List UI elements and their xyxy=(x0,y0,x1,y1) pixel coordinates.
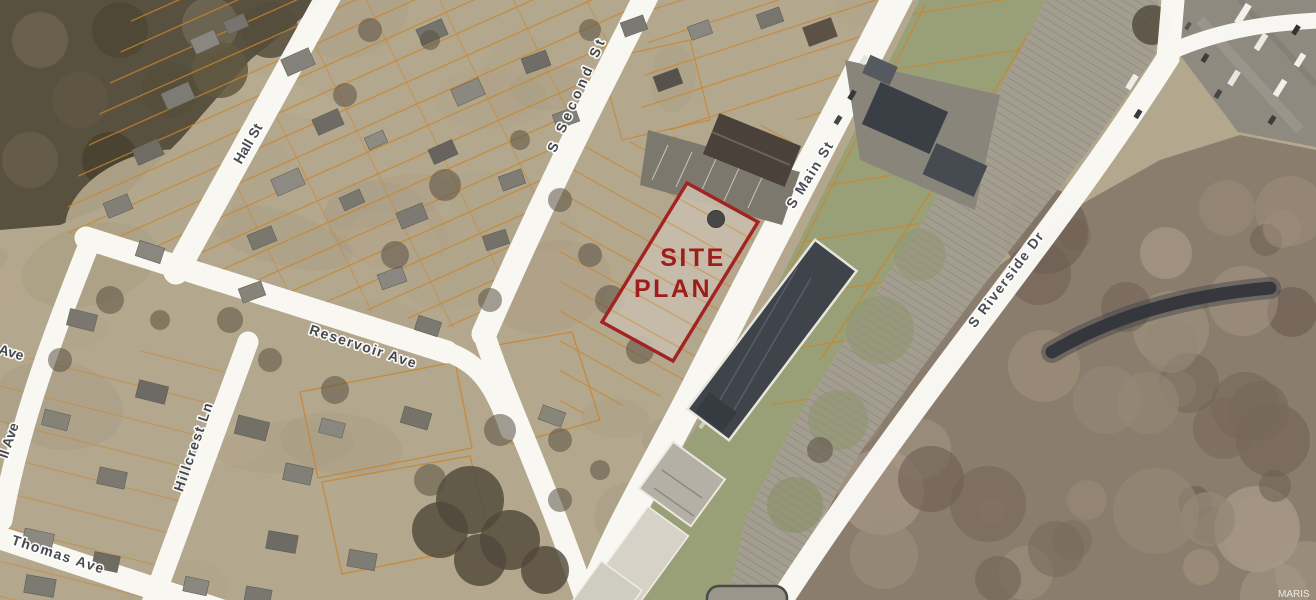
tree-canopy xyxy=(321,376,349,404)
tree-canopy xyxy=(1140,227,1192,279)
site-marker-dot xyxy=(708,211,725,228)
tree-canopy xyxy=(975,556,1021,600)
tree-canopy xyxy=(850,521,918,589)
tree-canopy xyxy=(258,348,282,372)
site-plan-text-line2: PLAN xyxy=(634,275,712,303)
tree-canopy xyxy=(12,12,68,68)
tree-canopy xyxy=(414,464,446,496)
tree-canopy xyxy=(578,243,602,267)
map-canvas: Hall St S Second St S Main St S Riversid… xyxy=(0,0,1316,600)
tree-canopy xyxy=(1199,180,1255,236)
tree-canopy xyxy=(429,169,461,201)
tree-canopy xyxy=(521,546,569,594)
tree-canopy xyxy=(2,132,58,188)
tree-canopy xyxy=(1259,470,1291,502)
tree-canopy xyxy=(1117,372,1179,434)
tree-canopy xyxy=(548,488,572,512)
tree-canopy xyxy=(1183,549,1219,585)
tree-canopy xyxy=(510,130,530,150)
maris-watermark: MARIS xyxy=(1278,589,1310,600)
tree-canopy xyxy=(1181,492,1235,546)
tree-canopy xyxy=(548,188,572,212)
tree-canopy xyxy=(590,460,610,480)
tree-canopy xyxy=(484,414,516,446)
rounded-building-footprint xyxy=(707,586,787,600)
tree-canopy xyxy=(478,288,502,312)
tree-canopy xyxy=(1052,520,1092,560)
aerial-map-image: Hall St S Second St S Main St S Riversid… xyxy=(0,0,1316,600)
tree-canopy xyxy=(48,348,72,372)
tree-canopy xyxy=(420,30,440,50)
tree-canopy xyxy=(548,428,572,452)
tree-canopy xyxy=(898,446,964,512)
tree-canopy xyxy=(96,286,124,314)
tree-canopy xyxy=(381,241,409,269)
tree-canopy xyxy=(454,534,506,586)
tree-canopy xyxy=(333,83,357,107)
tree-canopy xyxy=(358,18,382,42)
tree-canopy xyxy=(1144,319,1198,373)
tree-canopy xyxy=(1229,381,1289,441)
tree-canopy xyxy=(217,307,243,333)
tree-canopy xyxy=(150,310,170,330)
tree-canopy xyxy=(1067,480,1107,520)
tree-canopy xyxy=(807,437,833,463)
tree-canopy xyxy=(1263,210,1301,248)
site-plan-text-line1: SITE xyxy=(660,244,726,272)
